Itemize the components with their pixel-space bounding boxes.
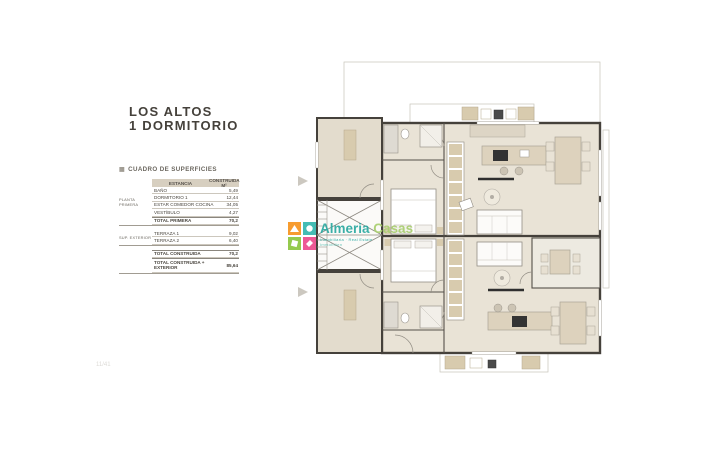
stool (515, 167, 523, 175)
stool (508, 304, 516, 312)
watermark-tagline1: Inmobiliaria · Real Estate (320, 238, 413, 242)
table-row: TERRAZA 2 6,40 (152, 237, 239, 244)
chair (582, 142, 590, 151)
table-row-total-primera: TOTAL PRIMERA 70,2 (152, 217, 239, 225)
table-row: VESTÍBULO 4,27 (152, 209, 239, 216)
page-title-line2: 1 DORMITORIO (129, 119, 239, 133)
stool (494, 304, 502, 312)
bbq-grill (494, 110, 503, 119)
outdoor-table (550, 250, 570, 274)
hall-bench (344, 130, 356, 160)
table-row-total-construida: TOTAL CONSTRUIDA 70,2 (152, 250, 239, 258)
watermark-brand: Almeria Casas (320, 222, 413, 236)
terrace-planters-bottom (445, 356, 540, 369)
pillow (415, 225, 432, 232)
chair (551, 326, 559, 335)
hall-bench (344, 290, 356, 320)
kitchen-counter (470, 125, 525, 137)
stool (500, 167, 508, 175)
table-row-total-construida-exterior: TOTAL CONSTRUIDA + EXTERIOR 85,64 (152, 258, 239, 273)
chair (587, 326, 595, 335)
balcony-railing (603, 130, 609, 288)
sofa (477, 210, 522, 234)
page-title-line1: LOS ALTOS (129, 105, 239, 119)
surfaces-heading: ▦ CUADRO DE SUPERFICIES (119, 166, 239, 173)
brochure-page: LOS ALTOS 1 DORMITORIO ▦ CUADRO DE SUPER… (0, 0, 705, 470)
chair (541, 266, 548, 274)
group-label-planta-primera: PLANTA PRIMERA (119, 179, 152, 225)
table-row: TERRAZA 1 9,02 (152, 230, 239, 237)
chair (541, 254, 548, 262)
sink (520, 150, 529, 157)
entrance-arrow-icon (298, 287, 308, 297)
cooktop (493, 150, 508, 161)
entrance-arrow-icon (298, 176, 308, 186)
surfaces-table: ▦ CUADRO DE SUPERFICIES PLANTA PRIMERA E… (119, 166, 239, 278)
page-number: 11/41 (96, 362, 111, 368)
table-row: BAÑO 5,49 (152, 187, 239, 194)
table-block-planta-primera: PLANTA PRIMERA ESTANCIA CONSTRUIDA M² BA… (119, 179, 239, 226)
dining-table (560, 302, 586, 344)
col-header-construida: CONSTRUIDA M² (209, 178, 239, 188)
watermark-logo (288, 222, 316, 250)
toilet (401, 313, 409, 323)
watermark-tagline2: Immobilien (320, 243, 413, 247)
watermark: Almeria Casas Inmobiliaria · Real Estate… (288, 222, 413, 250)
surfaces-table-body: PLANTA PRIMERA ESTANCIA CONSTRUIDA M² BA… (119, 179, 239, 274)
chair (573, 266, 580, 274)
table-row: ESTAR COMEDOR COCINA 34,05 (152, 202, 239, 209)
col-header-estancia: ESTANCIA (152, 181, 209, 186)
sofa (477, 242, 522, 266)
chair (551, 307, 559, 316)
table-block-totals: TOTAL CONSTRUIDA 70,2 TOTAL CONSTRUIDA +… (119, 250, 239, 274)
chair (546, 162, 554, 171)
wardrobe (447, 142, 464, 235)
nightstand (437, 239, 443, 246)
table-header-row: ESTANCIA CONSTRUIDA M² (152, 179, 239, 187)
bath-counter (384, 302, 398, 328)
chair (573, 254, 580, 262)
group-label-sup-exterior: SUP. EXTERIOR (119, 230, 152, 245)
table-block-sup-exterior: SUP. EXTERIOR TERRAZA 1 9,02 TERRAZA 2 6… (119, 230, 239, 246)
pillow (415, 241, 432, 248)
nightstand (437, 227, 443, 234)
table-grid-icon: ▦ (119, 167, 125, 173)
terrace-planters-top (462, 107, 534, 120)
page-title: LOS ALTOS 1 DORMITORIO (129, 105, 239, 133)
bath-counter (384, 125, 398, 153)
dining-table (555, 137, 581, 184)
chair (546, 142, 554, 151)
chair (582, 162, 590, 171)
chair (587, 307, 595, 316)
kitchen-island (482, 146, 546, 165)
wardrobe (447, 239, 464, 320)
cooktop (512, 316, 527, 327)
toilet (401, 129, 409, 139)
surfaces-heading-label: CUADRO DE SUPERFICIES (128, 166, 217, 173)
bbq-grill (488, 360, 496, 368)
table-row: DORMITORIO 1 12,44 (152, 194, 239, 201)
